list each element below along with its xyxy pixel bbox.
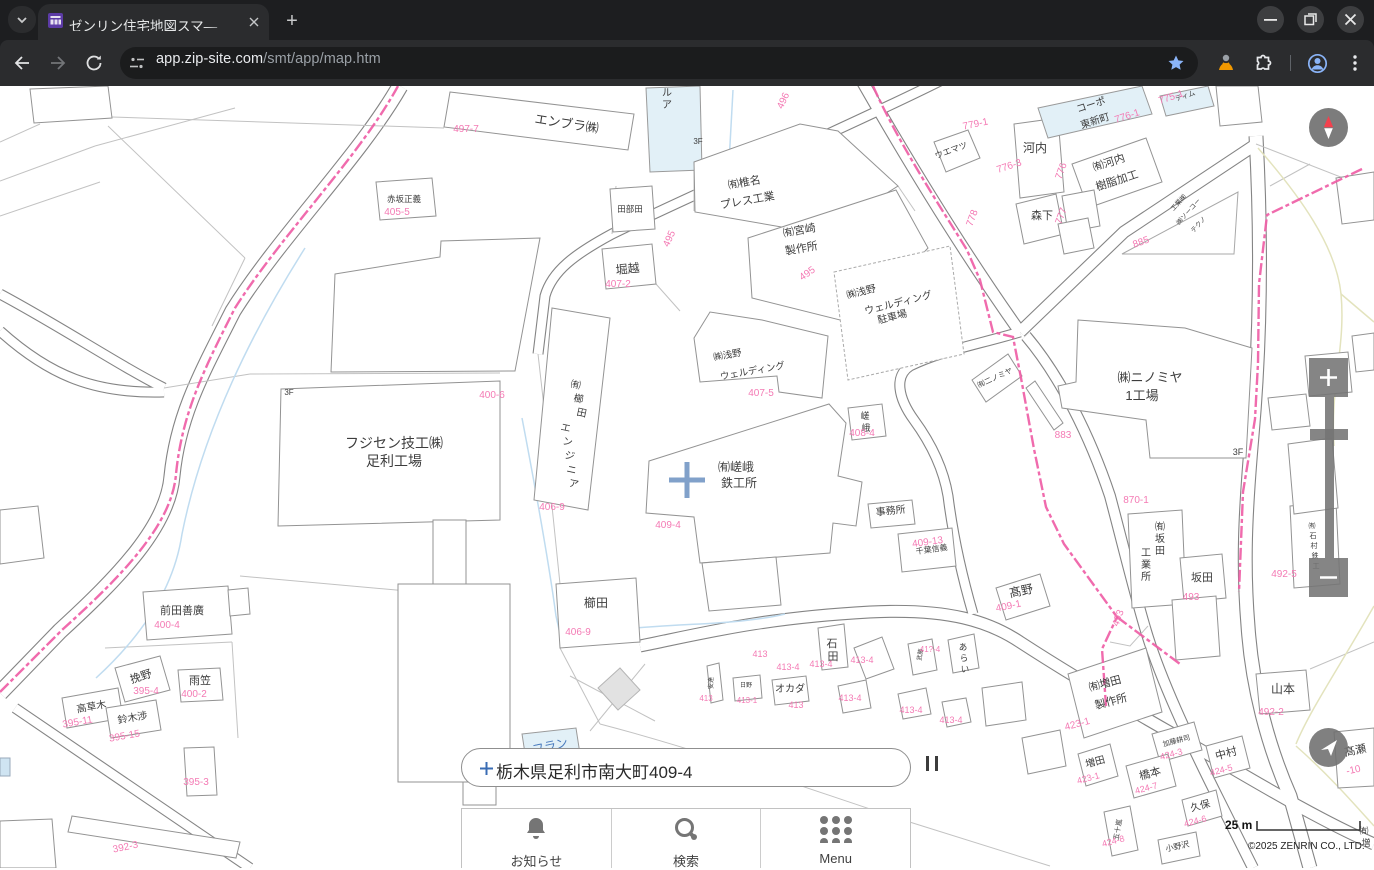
svg-text:所: 所 (1141, 571, 1151, 583)
svg-text:坂: 坂 (1155, 533, 1165, 545)
svg-text:安達: 安達 (707, 677, 715, 689)
svg-text:赤坂正義: 赤坂正義 (387, 194, 422, 204)
svg-text:工: 工 (1141, 548, 1151, 559)
svg-text:392-3: 392-3 (112, 839, 140, 855)
svg-text:41?-4: 41?-4 (920, 645, 941, 654)
svg-text:い: い (961, 664, 970, 674)
svg-text:405-5: 405-5 (384, 207, 410, 218)
svg-text:406-9: 406-9 (539, 502, 565, 513)
svg-text:496: 496 (775, 91, 792, 111)
svg-text:400-6: 400-6 (479, 390, 505, 401)
svg-text:413: 413 (788, 700, 803, 710)
svg-text:堀越: 堀越 (615, 260, 640, 277)
svg-text:鉄工所: 鉄工所 (721, 475, 757, 490)
svg-text:日野: 日野 (740, 681, 752, 689)
svg-text:㈲: ㈲ (1309, 521, 1316, 530)
svg-text:田: 田 (1155, 546, 1165, 557)
svg-text:409-4: 409-4 (655, 520, 681, 531)
svg-text:413-4: 413-4 (776, 662, 799, 672)
svg-text:400-2: 400-2 (181, 689, 207, 700)
svg-text:森下: 森下 (1031, 208, 1053, 222)
svg-text:492-2: 492-2 (1258, 707, 1284, 718)
svg-text:407-2: 407-2 (605, 279, 631, 290)
svg-text:407-5: 407-5 (748, 388, 774, 399)
svg-text:石: 石 (827, 638, 838, 650)
svg-text:492-5: 492-5 (1271, 569, 1297, 580)
svg-text:395-3: 395-3 (183, 777, 209, 788)
svg-text:408-4: 408-4 (849, 428, 875, 439)
svg-text:山本: 山本 (1271, 682, 1295, 696)
svg-text:ら: ら (960, 653, 969, 663)
svg-text:足利工場: 足利工場 (366, 453, 422, 469)
svg-text:河内: 河内 (1023, 141, 1047, 155)
svg-text:413-4: 413-4 (899, 705, 922, 715)
svg-text:3F: 3F (1233, 447, 1244, 457)
svg-text:オカダ: オカダ (775, 682, 805, 695)
svg-text:㈲: ㈲ (1155, 521, 1165, 533)
svg-text:業: 業 (1141, 558, 1151, 571)
svg-text:村: 村 (1311, 541, 1318, 550)
svg-text:413-4: 413-4 (850, 655, 873, 665)
svg-text:フジセン技工㈱: フジセン技工㈱ (345, 435, 443, 451)
svg-text:嵯: 嵯 (860, 410, 869, 421)
svg-text:493: 493 (1111, 608, 1127, 628)
svg-text:778: 778 (965, 208, 981, 228)
svg-text:雨笠: 雨笠 (189, 673, 211, 687)
svg-text:あ: あ (959, 642, 968, 652)
svg-text:㈱ニノミヤ: ㈱ニノミヤ (1117, 370, 1182, 385)
svg-text:坂田: 坂田 (1191, 571, 1213, 584)
svg-text:413: 413 (699, 694, 713, 703)
svg-text:413-4: 413-4 (809, 659, 832, 669)
svg-text:413: 413 (752, 649, 767, 659)
svg-text:395-4: 395-4 (133, 686, 159, 697)
svg-text:413-4: 413-4 (838, 693, 861, 703)
svg-text:櫛田: 櫛田 (584, 596, 608, 610)
svg-text:495: 495 (661, 229, 678, 249)
svg-text:406-9: 406-9 (565, 627, 591, 638)
svg-text:前田善廣: 前田善廣 (160, 603, 204, 617)
svg-text:493: 493 (1183, 592, 1200, 603)
svg-text:3F: 3F (693, 137, 702, 146)
svg-text:田部田: 田部田 (617, 204, 643, 214)
svg-text:413-1: 413-1 (737, 696, 758, 705)
svg-text:3F: 3F (284, 388, 293, 397)
svg-text:870-1: 870-1 (1123, 495, 1149, 506)
svg-text:1工場: 1工場 (1125, 388, 1158, 403)
svg-text:石: 石 (1310, 532, 1317, 540)
svg-text:883: 883 (1055, 430, 1072, 441)
svg-text:㈲嵯峨: ㈲嵯峨 (718, 460, 754, 474)
svg-text:779-1: 779-1 (962, 116, 990, 132)
svg-text:ア: ア (662, 100, 672, 111)
svg-text:ル: ル (662, 88, 672, 99)
svg-text:413-4: 413-4 (939, 715, 962, 725)
svg-text:400-4: 400-4 (154, 620, 180, 631)
svg-text:497-7: 497-7 (453, 124, 479, 135)
